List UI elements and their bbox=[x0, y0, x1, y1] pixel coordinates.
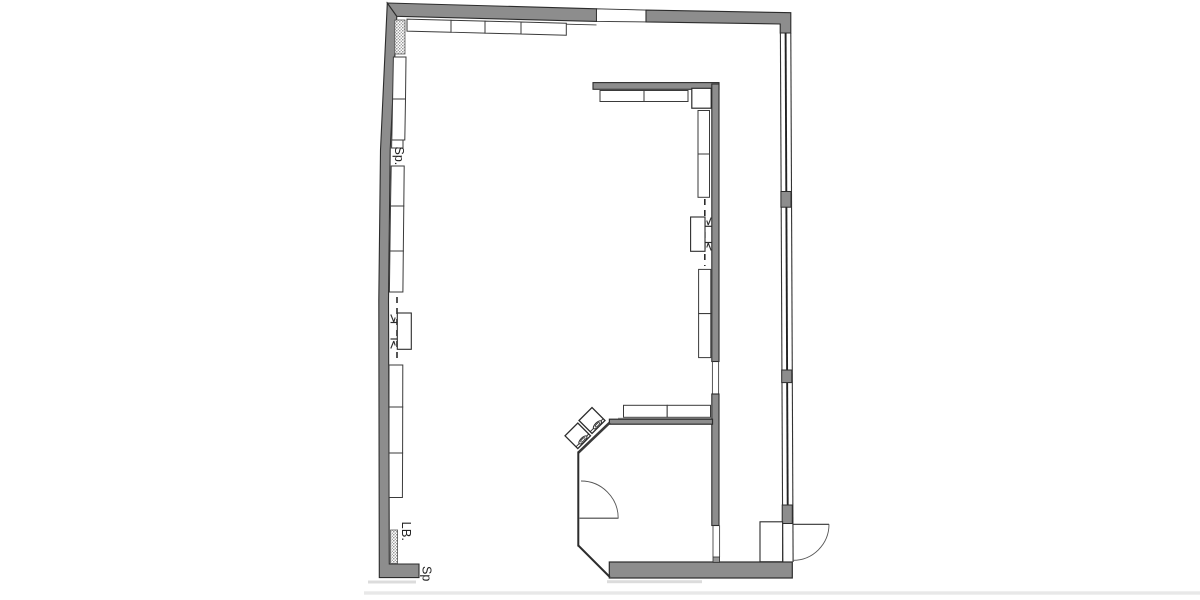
svg-text:Sp.: Sp. bbox=[392, 147, 406, 166]
svg-text:LB.: LB. bbox=[399, 522, 414, 542]
svg-text:Sp: Sp bbox=[420, 566, 434, 581]
